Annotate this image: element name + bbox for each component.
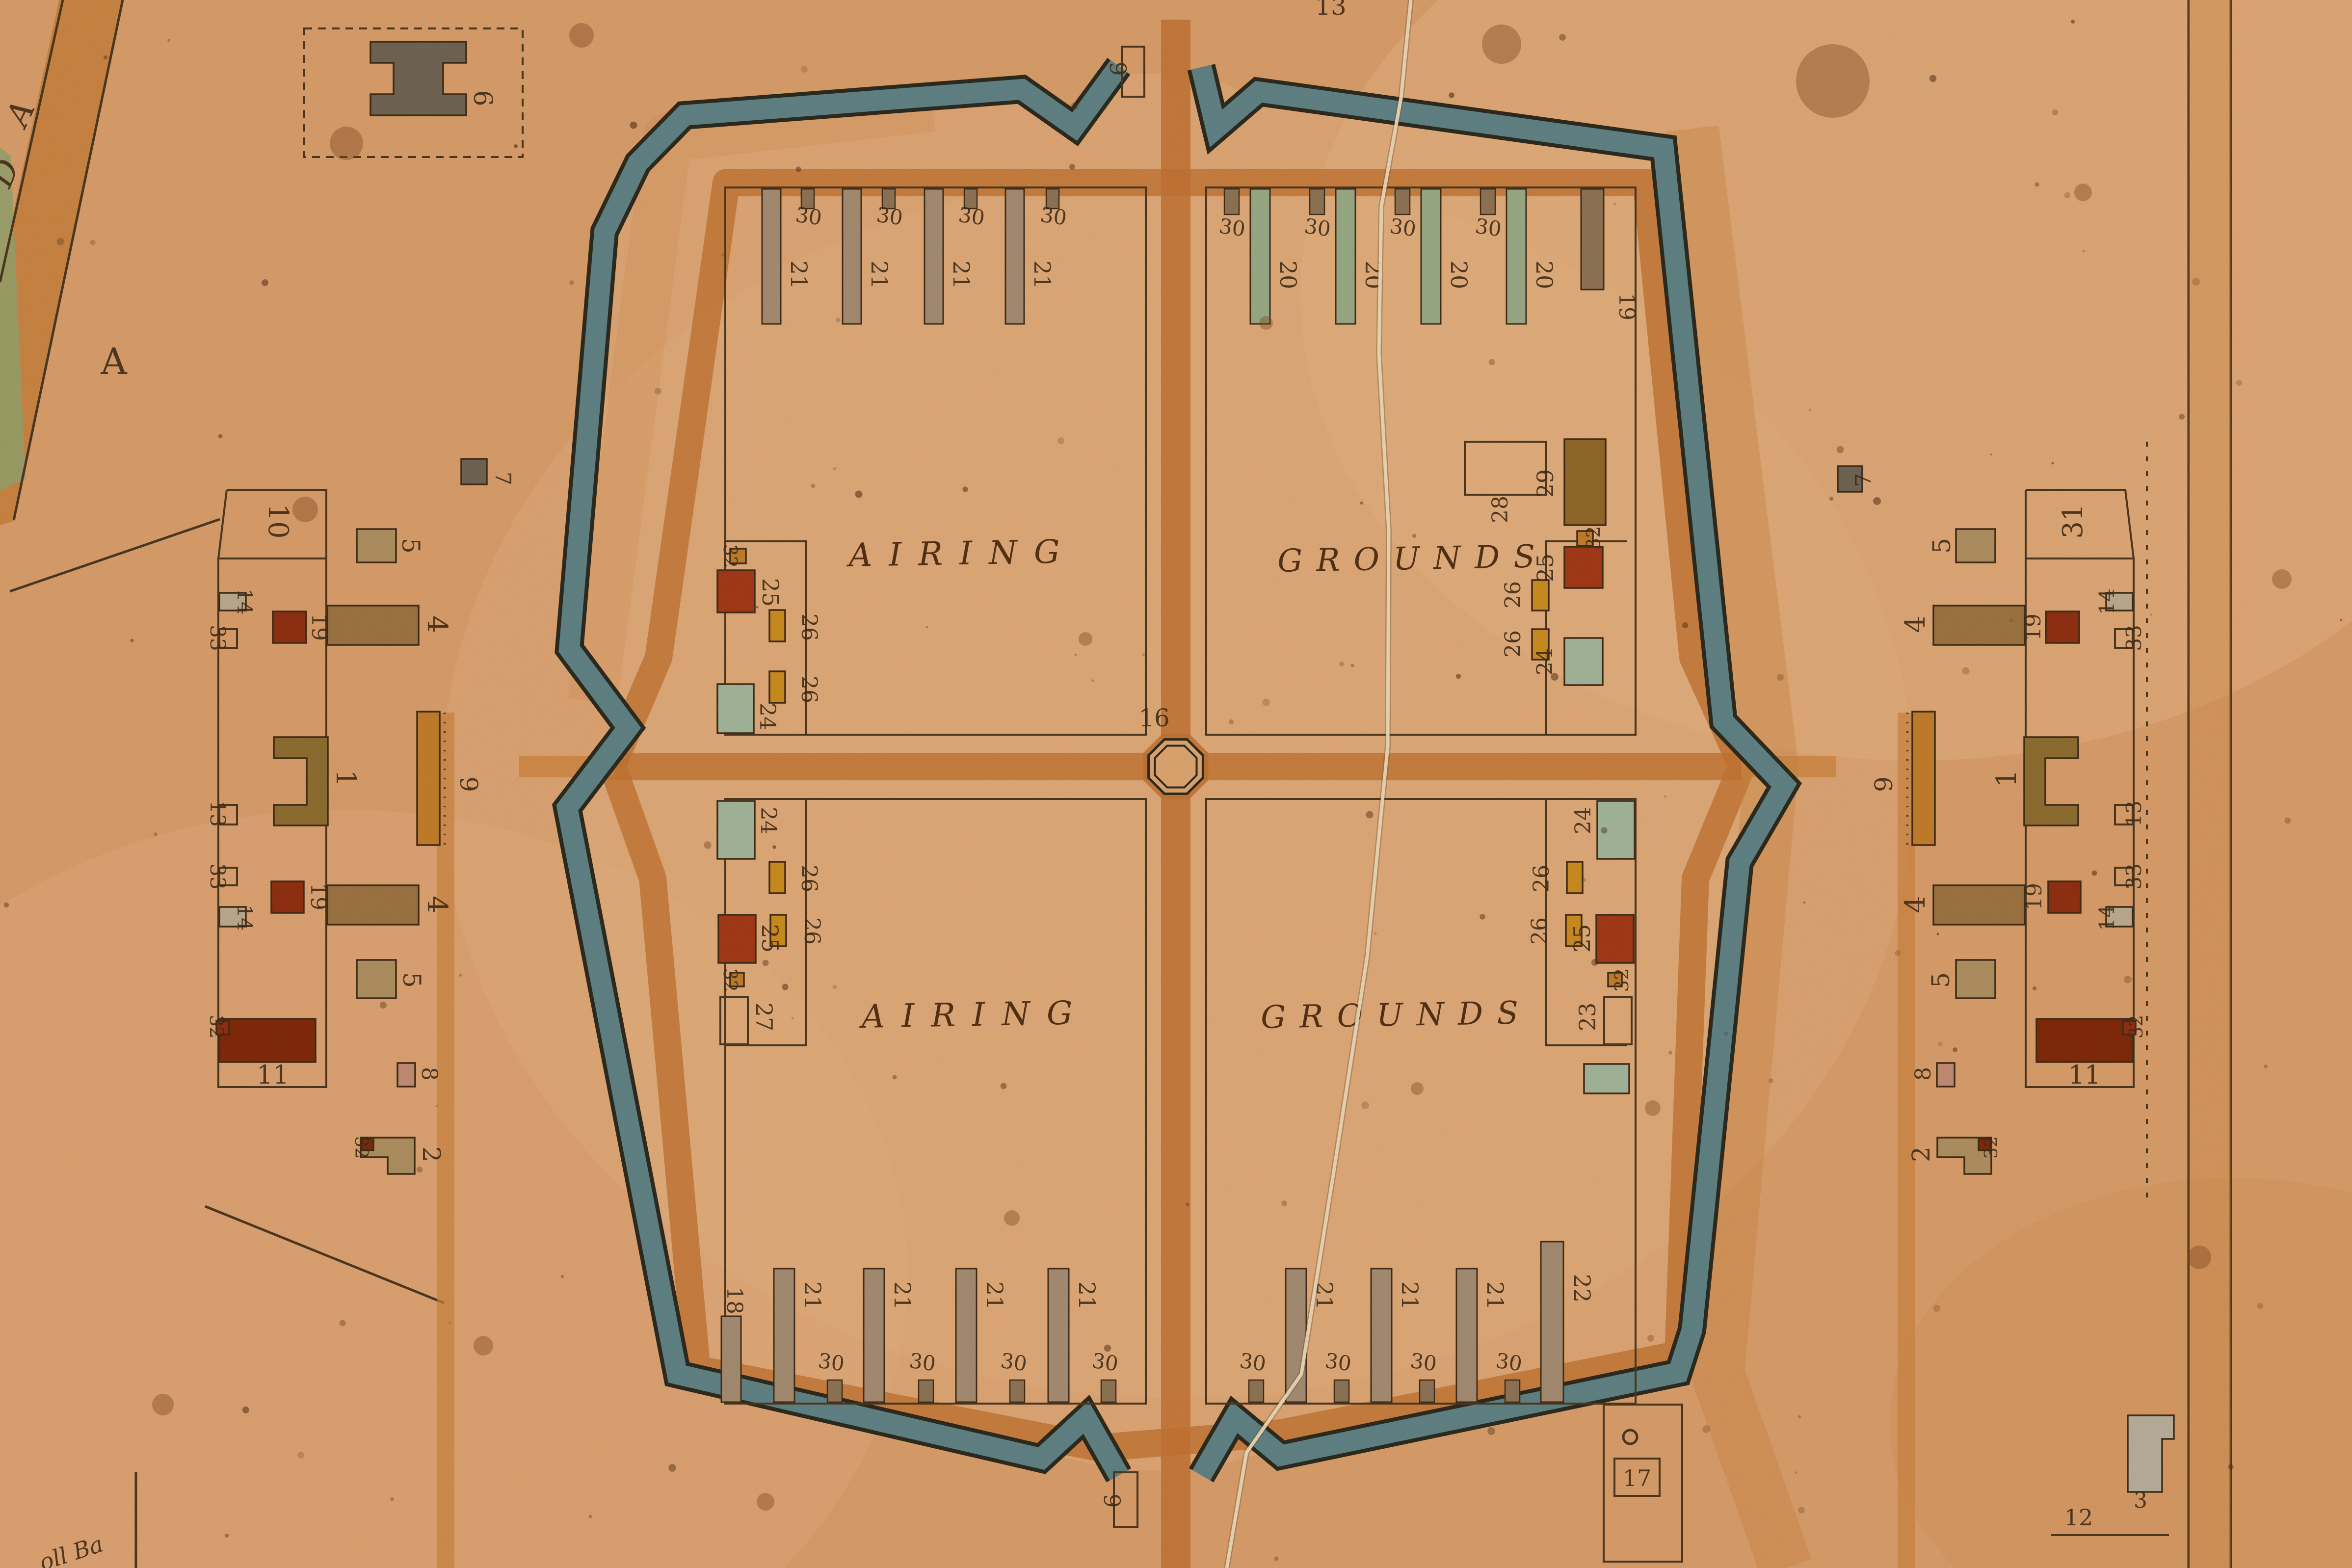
historic-plan-svg: 1396773030303021212121303030302020202019…: [0, 0, 2352, 1568]
paper-grain: [0, 0, 2352, 1568]
map-canvas: 1396773030303021212121303030302020202019…: [0, 0, 2352, 1568]
